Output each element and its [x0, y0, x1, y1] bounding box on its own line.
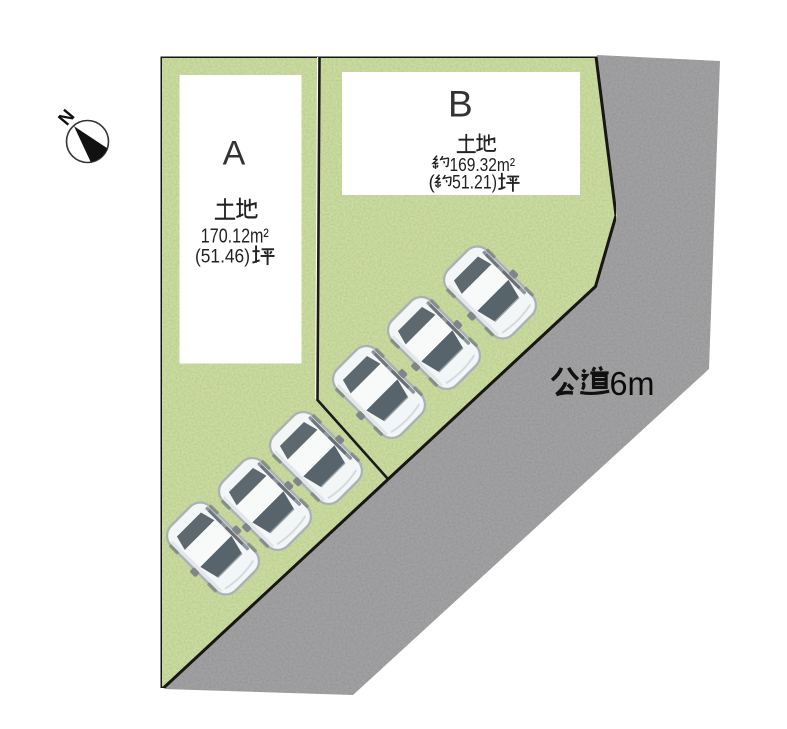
- svg-text:6m: 6m: [610, 366, 655, 403]
- svg-text:B: B: [448, 84, 473, 125]
- svg-text:A: A: [223, 135, 246, 173]
- svg-text:(51.46): (51.46): [195, 246, 250, 268]
- svg-text:51.21): 51.21): [452, 173, 497, 194]
- svg-text:170.12m²: 170.12m²: [201, 226, 269, 248]
